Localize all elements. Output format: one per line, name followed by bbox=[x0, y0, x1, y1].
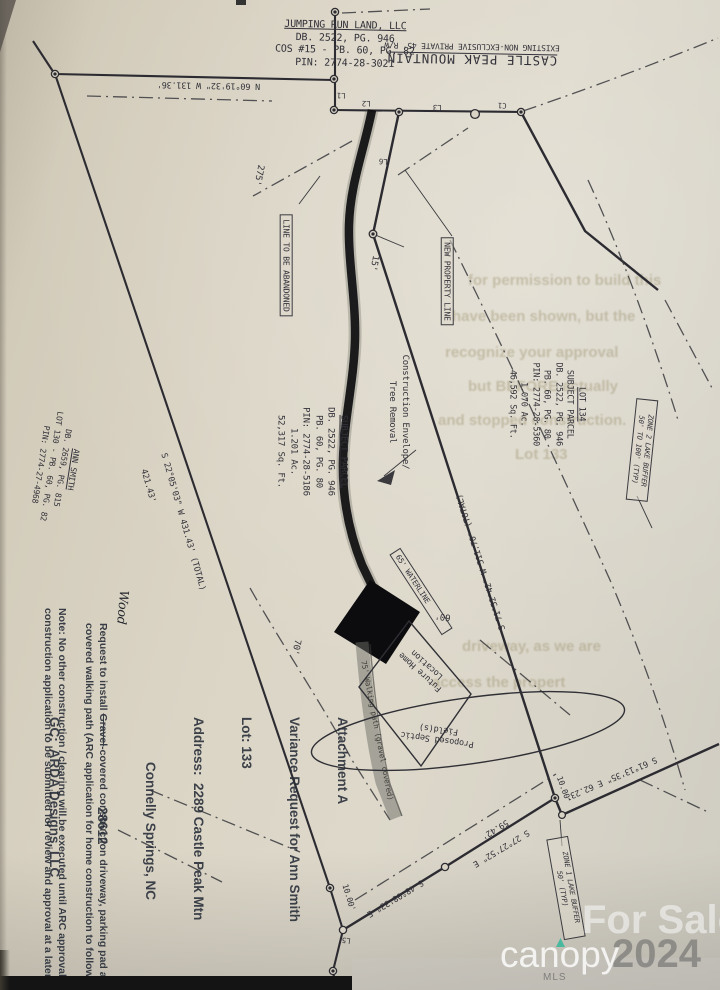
scan-edge-corner bbox=[0, 950, 10, 990]
parcel-line: PB. 60, PG. 80 bbox=[312, 396, 325, 508]
note-line1: Note: No other construction / clearing w… bbox=[55, 608, 69, 990]
parcel-title: SUBJECT PARCEL bbox=[337, 396, 350, 508]
lot134-line: PB. 60, PG. 80 bbox=[540, 352, 552, 456]
scan-edge-left bbox=[0, 0, 7, 990]
scan-edge-bottom bbox=[0, 976, 352, 990]
request-note: Request to install Gravel-covered constr… bbox=[82, 623, 110, 990]
dimension-label: 60' bbox=[434, 610, 451, 622]
road-name-block: CASTLE PEAK MOUNTAIN EXISTING NON-EXCLUS… bbox=[357, 38, 587, 68]
line-to-be-abandoned-callout: LINE TO BE ABANDONED bbox=[280, 214, 293, 316]
construction-envelope-line: Construction Envelope/ bbox=[398, 350, 411, 474]
attachment-line: Address: 2289 Castle Peak Mtn bbox=[190, 717, 206, 987]
lot134-block: LOT 134 SUBJECT PARCEL DB. 2522, PG. 946… bbox=[506, 352, 587, 456]
attachment-line: Connelly Springs, NC bbox=[142, 717, 158, 987]
bearing-label: N 60°19'32" W 131.36' bbox=[157, 79, 260, 91]
construction-note: Note: No other construction / clearing w… bbox=[41, 608, 69, 990]
line-tag: L3 bbox=[433, 103, 442, 112]
attachment-title: Attachment A bbox=[334, 717, 350, 987]
mls-watermark: MLS bbox=[543, 972, 567, 983]
note-line2: construction application to be submitted… bbox=[41, 608, 55, 990]
parcel-line: PIN: 2774-28-5186 bbox=[300, 396, 313, 508]
new-property-line-callout: NEW PROPERTY LINE bbox=[441, 237, 454, 325]
request-text: Request to install bbox=[97, 623, 109, 713]
attachment-line: Lot: 133 bbox=[238, 717, 254, 987]
attachment-block: Attachment A Variance Request for Ann Sm… bbox=[14, 717, 382, 987]
parcel-line: DB. 2522, PG. 946 bbox=[325, 396, 338, 508]
line-tag: L1 bbox=[337, 91, 346, 100]
lot134-line: SUBJECT PARCEL bbox=[563, 352, 575, 456]
lot134-line: 1.070 Ac. bbox=[517, 352, 529, 456]
year-watermark: 2024 bbox=[612, 932, 701, 977]
lot134-line: DB. 2522, PG. 946 bbox=[552, 352, 564, 456]
construction-envelope-line: Tree Removal bbox=[385, 350, 398, 474]
parcel-line: 1.201 Ac. bbox=[287, 396, 300, 508]
request-line2: covered walking path (ARC application fo… bbox=[82, 623, 96, 990]
lot134-line: PIN: 2774-28-5360 bbox=[529, 352, 541, 456]
lot134-title: LOT 134 bbox=[575, 352, 587, 456]
request-line1: Request to install Gravel-covered constr… bbox=[96, 623, 110, 990]
lot134-line: 46,592 Sq. Ft. bbox=[506, 352, 518, 456]
construction-envelope-label: Construction Envelope/ Tree Removal bbox=[385, 350, 411, 474]
subject-parcel-block: SUBJECT PARCEL DB. 2522, PG. 946 PB. 60,… bbox=[275, 396, 350, 508]
scanned-survey-plat: for permission to build this have been s… bbox=[0, 0, 720, 990]
parcel-line: 52,317 Sq. Ft. bbox=[275, 396, 288, 508]
line-tag: L6 bbox=[379, 157, 388, 167]
request-text: -covered construction driveway, parking … bbox=[97, 746, 109, 990]
curve-tag: C1 bbox=[498, 101, 507, 110]
line-tag: L2 bbox=[362, 99, 371, 108]
handwritten-correction: Wood bbox=[114, 590, 132, 625]
attachment-line: Variance Request for Ann Smith bbox=[286, 717, 302, 987]
scan-edge-mark bbox=[236, 0, 246, 5]
struck-word: Gravel bbox=[97, 713, 109, 746]
